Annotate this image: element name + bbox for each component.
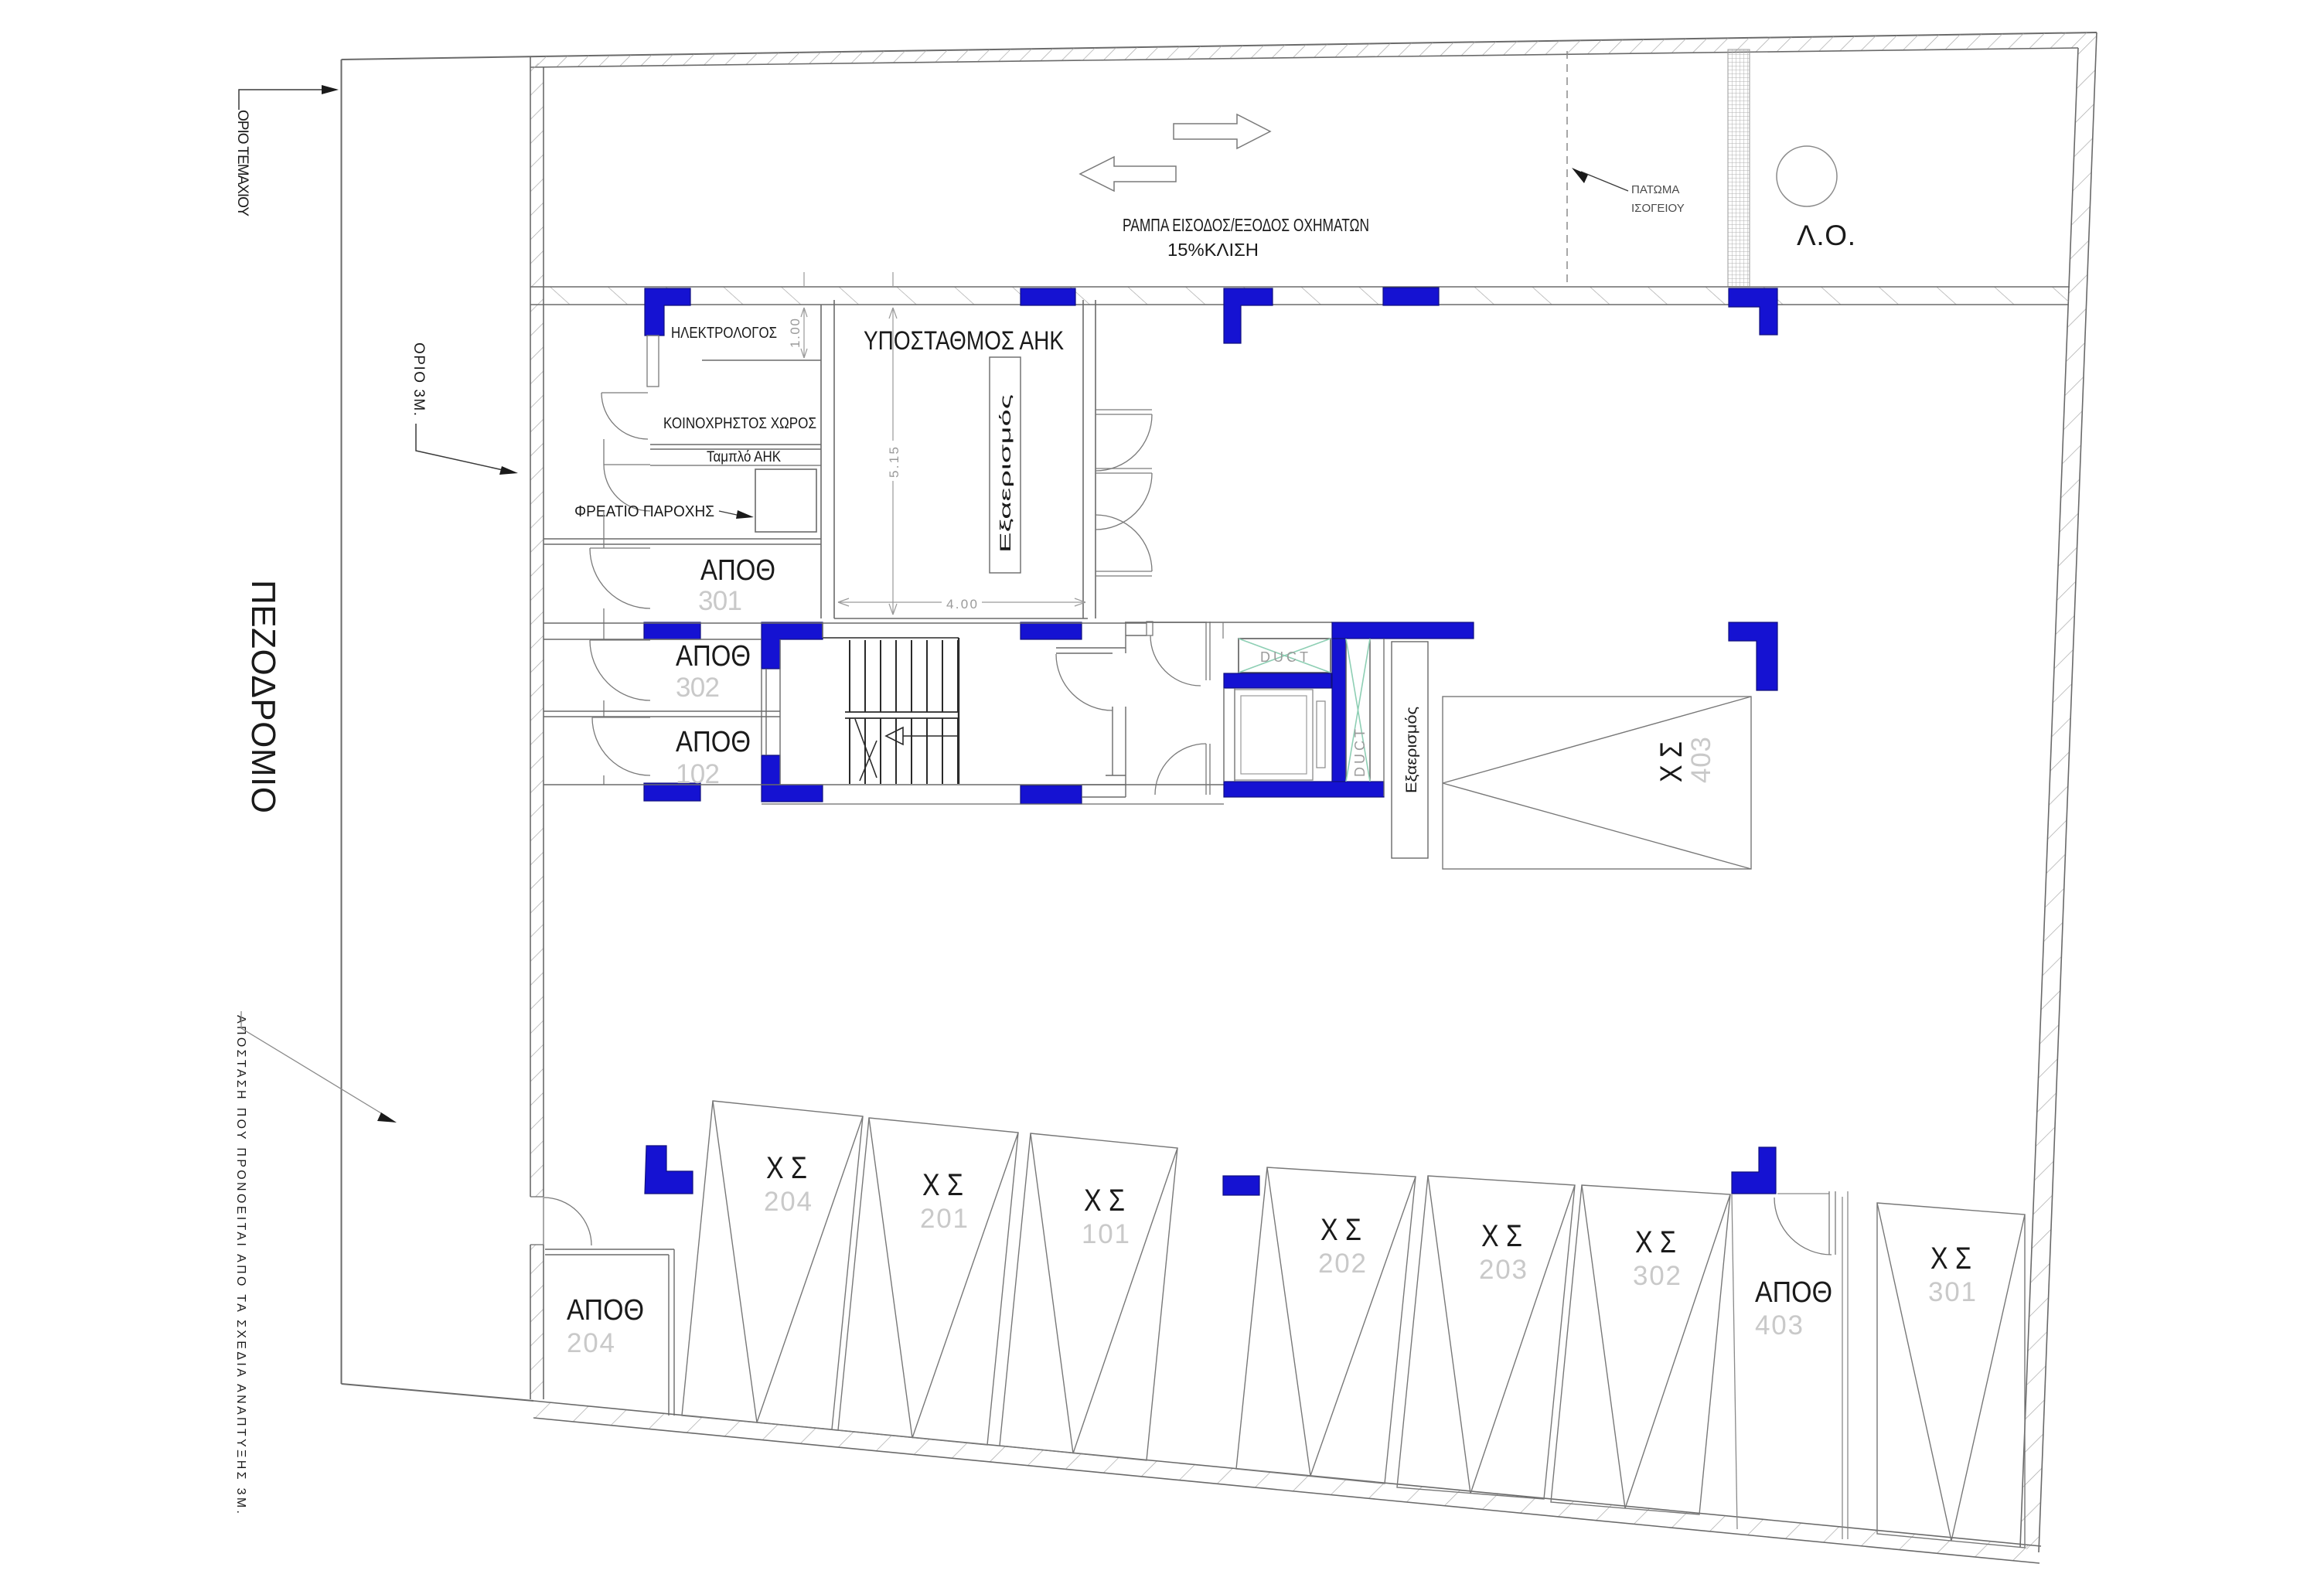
svg-text:ΙΣΟΓΕΙΟΥ: ΙΣΟΓΕΙΟΥ <box>1631 202 1685 215</box>
svg-text:201: 201 <box>920 1204 968 1234</box>
svg-text:Χ Σ: Χ Σ <box>1930 1242 1971 1276</box>
svg-text:ΟΡΙΟ ΤΕΜΑΧΙΟΥ: ΟΡΙΟ ΤΕΜΑΧΙΟΥ <box>234 110 250 216</box>
svg-text:ΑΠΟΘ: ΑΠΟΘ <box>700 554 775 587</box>
svg-text:Λ.Ο.: Λ.Ο. <box>1797 220 1855 251</box>
svg-text:Χ Σ: Χ Σ <box>1320 1213 1361 1247</box>
svg-text:403: 403 <box>1755 1310 1803 1341</box>
svg-text:Χ Σ: Χ Σ <box>1481 1219 1522 1253</box>
svg-text:5.15: 5.15 <box>887 447 901 478</box>
svg-text:15%ΚΛΙΣΗ: 15%ΚΛΙΣΗ <box>1167 240 1259 260</box>
svg-text:301: 301 <box>698 586 742 616</box>
svg-text:Χ Σ: Χ Σ <box>1635 1225 1676 1259</box>
svg-text:202: 202 <box>1318 1249 1366 1279</box>
svg-text:ΠΑΤΩΜΑ: ΠΑΤΩΜΑ <box>1631 183 1679 196</box>
svg-text:4.00: 4.00 <box>946 597 977 612</box>
svg-text:Χ Σ: Χ Σ <box>766 1151 807 1185</box>
svg-text:ΟΡΙΟ 3Μ.: ΟΡΙΟ 3Μ. <box>411 342 427 416</box>
svg-text:ΑΠΟΣΤΑΣΗ ΠΟΥ ΠΡΟΝΟΕΙΤΑΙ ΑΠΟ ΤΑ: ΑΠΟΣΤΑΣΗ ΠΟΥ ΠΡΟΝΟΕΙΤΑΙ ΑΠΟ ΤΑ ΣΧΕΔΙΑ ΑΝ… <box>234 1015 247 1514</box>
svg-text:ΡΑΜΠΑ ΕΙΣΟΔΟΣ/ΕΞΟΔΟΣ ΟΧΗΜΑΤΩΝ: ΡΑΜΠΑ ΕΙΣΟΔΟΣ/ΕΞΟΔΟΣ ΟΧΗΜΑΤΩΝ <box>1123 215 1369 235</box>
svg-text:403: 403 <box>1686 737 1716 783</box>
svg-text:Χ Σ: Χ Σ <box>922 1168 963 1202</box>
svg-text:301: 301 <box>1928 1277 1976 1307</box>
svg-text:Ταμπλό ΑΗΚ: Ταμπλό ΑΗΚ <box>707 449 781 465</box>
svg-text:204: 204 <box>567 1328 615 1358</box>
svg-text:302: 302 <box>676 673 720 703</box>
svg-text:101: 101 <box>1082 1219 1130 1249</box>
svg-text:204: 204 <box>764 1187 812 1217</box>
svg-text:ΚΟΙΝΟΧΡΗΣΤΟΣ ΧΩΡΟΣ: ΚΟΙΝΟΧΡΗΣΤΟΣ ΧΩΡΟΣ <box>663 415 816 432</box>
svg-text:ΦΡΕΑΤΙΟ ΠΑΡΟΧΗΣ: ΦΡΕΑΤΙΟ ΠΑΡΟΧΗΣ <box>574 503 714 520</box>
svg-text:ΑΠΟΘ: ΑΠΟΘ <box>676 640 751 673</box>
svg-text:Εξαερισμός: Εξαερισμός <box>998 394 1014 553</box>
svg-text:ΑΠΟΘ: ΑΠΟΘ <box>567 1294 644 1327</box>
svg-text:ΑΠΟΘ: ΑΠΟΘ <box>1755 1276 1832 1309</box>
svg-text:203: 203 <box>1479 1255 1527 1285</box>
svg-text:ΥΠΟΣΤΑΘΜΟΣ ΑΗΚ: ΥΠΟΣΤΑΘΜΟΣ ΑΗΚ <box>864 326 1064 356</box>
svg-text:ΠΕΖΟΔΡΟΜΙΟ: ΠΕΖΟΔΡΟΜΙΟ <box>244 580 282 813</box>
svg-text:Χ Σ: Χ Σ <box>1654 741 1688 782</box>
svg-text:ΗΛΕΚΤΡΟΛΟΓΟΣ: ΗΛΕΚΤΡΟΛΟΓΟΣ <box>671 325 777 342</box>
svg-text:DUCT: DUCT <box>1260 649 1308 665</box>
svg-text:1.00: 1.00 <box>788 319 802 348</box>
svg-text:Εξαερισμός: Εξαερισμός <box>1404 707 1420 793</box>
svg-text:ΑΠΟΘ: ΑΠΟΘ <box>676 726 751 758</box>
svg-text:Χ Σ: Χ Σ <box>1084 1184 1125 1218</box>
svg-text:302: 302 <box>1633 1261 1681 1291</box>
